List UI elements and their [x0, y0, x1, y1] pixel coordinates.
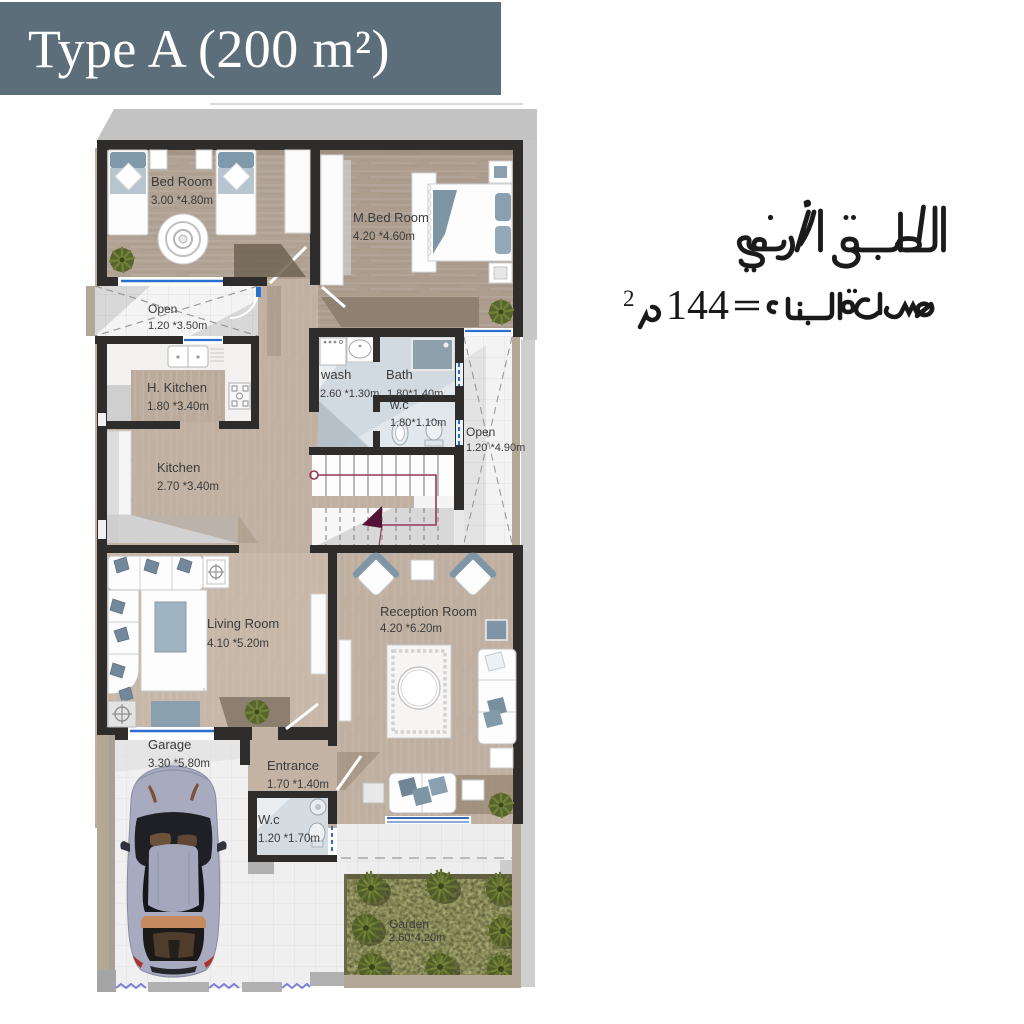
svg-text:2.60*4.20m: 2.60*4.20m [389, 932, 445, 944]
svg-text:w.c: w.c [389, 397, 409, 412]
svg-text:1.20 *3.50m: 1.20 *3.50m [148, 320, 207, 332]
svg-text:Bath: Bath [386, 367, 413, 382]
svg-text:4.10 *5.20m: 4.10 *5.20m [207, 638, 269, 650]
svg-text:H. Kitchen: H. Kitchen [147, 380, 207, 395]
svg-text:1.20 *4.90m: 1.20 *4.90m [466, 442, 525, 454]
svg-text:3.00 *4.80m: 3.00 *4.80m [151, 195, 213, 207]
svg-text:3.30 *5.80m: 3.30 *5.80m [148, 758, 210, 770]
svg-text:4.20 *6.20m: 4.20 *6.20m [380, 623, 442, 635]
svg-text:4.20 *4.60m: 4.20 *4.60m [353, 231, 415, 243]
svg-text:1.80*1.10m: 1.80*1.10m [390, 417, 446, 429]
svg-text:Garden: Garden [389, 917, 429, 931]
svg-text:Open: Open [148, 302, 177, 316]
svg-text:2: 2 [623, 286, 635, 311]
svg-text:Type A (200 m²): Type A (200 m²) [28, 19, 390, 79]
svg-text:Bed Room: Bed Room [151, 174, 212, 189]
svg-text:Open: Open [466, 425, 495, 439]
svg-text:M.Bed Room: M.Bed Room [353, 210, 429, 225]
svg-text:2.60 *1.30m: 2.60 *1.30m [320, 388, 379, 400]
svg-text:Living Room: Living Room [207, 616, 279, 631]
svg-text:1.20 *1.70m: 1.20 *1.70m [258, 833, 320, 845]
svg-text:wash: wash [320, 367, 351, 382]
svg-text:1.80 *3.40m: 1.80 *3.40m [147, 401, 209, 413]
svg-text:1.70 *1.40m: 1.70 *1.40m [267, 779, 329, 791]
svg-text:W.c: W.c [258, 812, 280, 827]
svg-text:Garage: Garage [148, 737, 191, 752]
svg-text:Reception Room: Reception Room [380, 604, 477, 619]
svg-text:Kitchen: Kitchen [157, 460, 200, 475]
svg-text:2.70 *3.40m: 2.70 *3.40m [157, 481, 219, 493]
svg-text:Entrance: Entrance [267, 758, 319, 773]
svg-text:144: 144 [666, 283, 729, 329]
